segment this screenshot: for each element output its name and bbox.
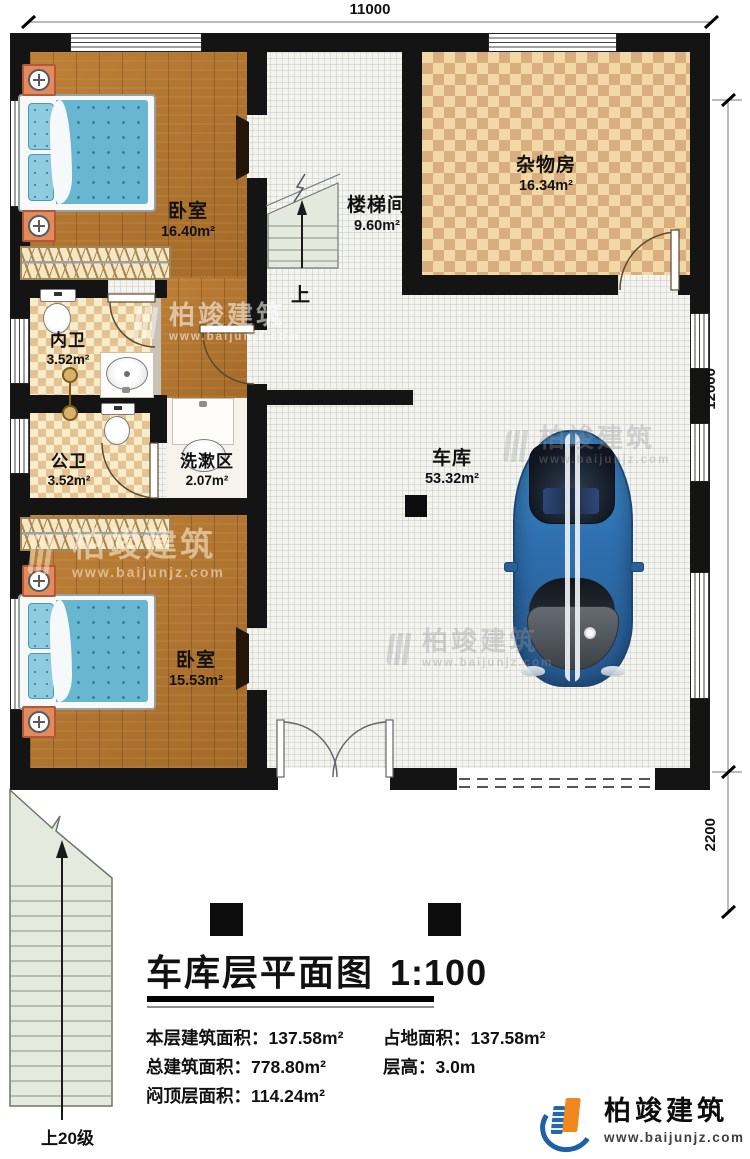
wall-segment: [150, 395, 167, 443]
title-underline-thin: [147, 1006, 434, 1008]
window-symbol: [690, 313, 710, 369]
lamp-icon: [28, 215, 50, 237]
floor-plan-page: 柏竣建筑www.baijunjz.com 柏竣建筑www.baijunjz.co…: [0, 0, 750, 1159]
dimension-right-main: 12000: [702, 368, 719, 410]
toilet: [40, 289, 74, 331]
room-name: 洗漱区: [180, 447, 234, 472]
column-pillar: [210, 903, 243, 936]
room-name: 卧室: [161, 196, 215, 223]
room-label-bedroom2: 卧室 15.53m²: [169, 645, 223, 689]
column-pillar: [405, 495, 427, 517]
car-mirror: [504, 562, 518, 572]
room-name: 公卫: [48, 447, 91, 472]
lamp-icon: [28, 711, 50, 733]
stair-up-label: 上: [291, 280, 310, 307]
window-symbol: [70, 33, 202, 52]
faucet-icon: [122, 387, 130, 393]
room-label-garage: 车库 53.32m²: [425, 443, 479, 487]
stat-row: 占地面积：137.58m²: [383, 1024, 545, 1053]
wall-segment: [390, 768, 457, 790]
company-name: 柏竣建筑: [604, 1098, 745, 1125]
room-area: 3.52m²: [48, 473, 91, 488]
window-symbol: [10, 418, 30, 474]
column-pillar: [428, 903, 461, 936]
title-underline: [147, 996, 434, 1002]
car-top-view: [513, 430, 633, 687]
room-label-inner-bath: 内卫 3.52m²: [47, 326, 90, 367]
car-racing-stripe: [565, 433, 580, 682]
stats-left-column: 本层建筑面积：137.58m² 总建筑面积：778.80m² 闷顶层面积：114…: [146, 1024, 343, 1111]
room-area: 3.52m²: [47, 352, 90, 367]
room-name: 卧室: [169, 645, 223, 672]
wall-segment: [10, 498, 265, 515]
room-name: 杂物房: [516, 150, 576, 177]
car-emblem-icon: [583, 626, 597, 640]
nightstand: [22, 64, 56, 96]
wall-segment: [10, 768, 278, 790]
room-label-public-bath: 公卫 3.52m²: [48, 447, 91, 488]
room-label-storage: 杂物房 16.34m²: [516, 150, 576, 194]
wall-segment: [247, 178, 267, 330]
lamp-icon: [28, 570, 50, 592]
stat-row: 层高：3.0m: [383, 1053, 545, 1082]
room-area: 9.60m²: [347, 218, 407, 234]
dimension-right-lower: 2200: [702, 818, 719, 851]
dimension-top: 11000: [320, 1, 420, 18]
room-area: 16.34m²: [516, 178, 576, 194]
wall-segment: [247, 52, 267, 115]
room-area: 2.07m²: [180, 473, 234, 488]
wardrobe: [20, 246, 171, 280]
car-headlight: [601, 666, 625, 676]
title-text: 车库层平面图: [146, 944, 374, 996]
window-symbol: [690, 423, 710, 482]
stat-row: 总建筑面积：778.80m²: [146, 1053, 343, 1082]
room-area: 53.32m²: [425, 471, 479, 487]
wall-segment: [248, 390, 413, 405]
room-area: 15.53m²: [169, 673, 223, 689]
bed: [18, 594, 156, 710]
stat-row: 闷顶层面积：114.24m²: [146, 1082, 343, 1111]
bed: [18, 94, 156, 212]
company-url: www.baijunjz.com: [604, 1130, 745, 1145]
wall-segment: [678, 275, 710, 295]
room-label-wash-area: 洗漱区 2.07m²: [180, 447, 234, 488]
title-scale: 1:100: [390, 952, 487, 994]
wall-segment: [155, 278, 167, 298]
room-area: 16.40m²: [161, 224, 215, 240]
room-name: 楼梯间: [347, 190, 407, 217]
wall-segment: [655, 768, 710, 790]
company-logo-icon: [540, 1096, 594, 1146]
window-symbol: [488, 33, 617, 52]
wall-segment: [247, 690, 267, 768]
car-mirror: [630, 562, 644, 572]
room-name: 车库: [425, 443, 479, 470]
window-symbol: [10, 318, 30, 384]
room-label-bedroom1: 卧室 16.40m²: [161, 196, 215, 240]
wardrobe: [20, 517, 171, 551]
nightstand: [22, 565, 56, 597]
nightstand: [22, 210, 56, 242]
stat-row: 本层建筑面积：137.58m²: [146, 1024, 343, 1053]
vestibule-floor: [155, 278, 247, 398]
stats-right-column: 占地面积：137.58m² 层高：3.0m: [383, 1024, 545, 1082]
sink: [106, 357, 148, 390]
drawing-title: 车库层平面图 1:100: [146, 944, 487, 996]
nightstand: [22, 706, 56, 738]
wall-segment: [402, 275, 618, 295]
room-label-stairwell: 楼梯间 9.60m²: [347, 190, 407, 234]
toilet: [101, 403, 133, 443]
window-symbol: [690, 572, 710, 699]
car-headlight: [521, 666, 545, 676]
lamp-icon: [28, 69, 50, 91]
faucet-icon: [199, 401, 207, 407]
wall-segment: [402, 52, 422, 295]
room-name: 内卫: [47, 326, 90, 351]
company-logo: 柏竣建筑 www.baijunjz.com: [540, 1096, 745, 1146]
exterior-stair-label: 上20级: [20, 1124, 115, 1149]
